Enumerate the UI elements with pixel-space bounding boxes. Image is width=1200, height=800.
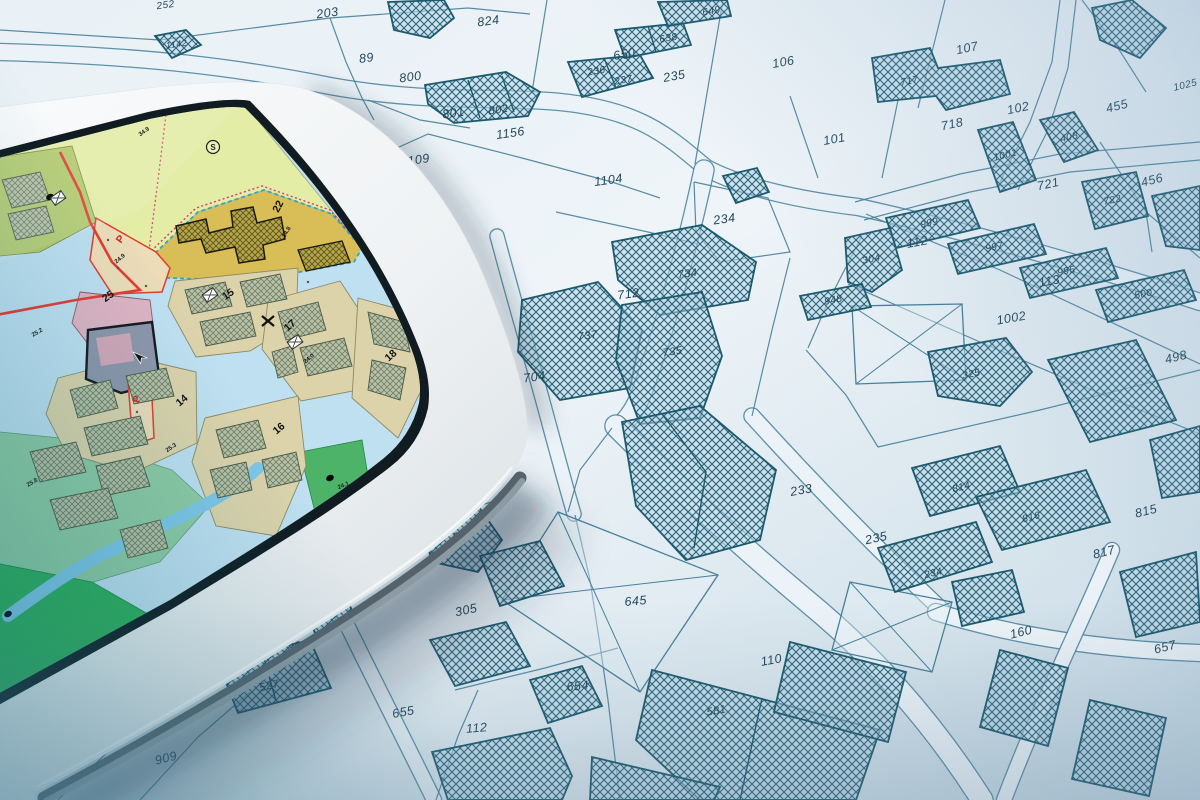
parcel-label: 645 xyxy=(624,593,647,609)
parcel-label: 654 xyxy=(566,678,589,694)
svg-text:S: S xyxy=(210,143,216,152)
cadastral-map-artwork: 2522038248980080180211561109110411426502… xyxy=(0,0,1200,800)
scene-tablet-on-cadastral-map: 2522038248980080180211561109110411426502… xyxy=(0,0,1200,800)
parcel-label: 89 xyxy=(358,50,375,66)
s-circle-icon: S xyxy=(207,141,220,154)
parcel-label: 112 xyxy=(465,720,488,736)
hatched-parcel xyxy=(1072,700,1166,796)
